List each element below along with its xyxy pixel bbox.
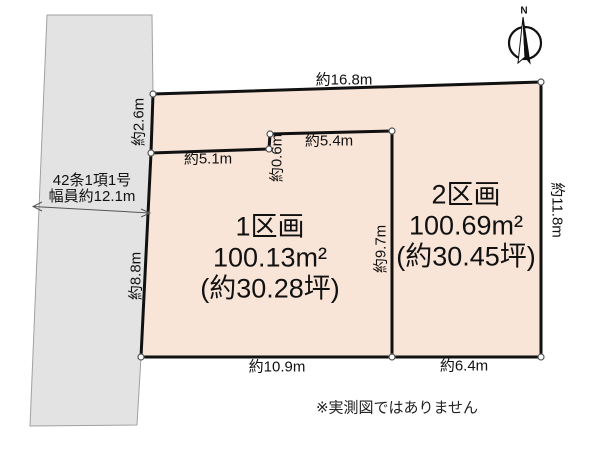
vertex-dot xyxy=(538,354,544,360)
vertex-dot xyxy=(148,150,154,156)
vertex-dot xyxy=(150,91,156,97)
parcel-2-area-tsubo: (約30.45坪) xyxy=(396,242,536,273)
dim-left-lower-edge: 約8.8m xyxy=(129,252,144,300)
parcel-1-label: 1区画 100.13m² (約30.28坪) xyxy=(200,212,340,305)
road-annotation: 42条1項1号 幅員約12.1m xyxy=(49,173,136,205)
dim-right-edge: 約11.8m xyxy=(550,182,565,238)
dim-inner-left-segment: 約5.1m xyxy=(184,152,232,167)
parcel-2-name: 2区画 xyxy=(396,180,536,211)
parcel-2-label: 2区画 100.69m² (約30.45坪) xyxy=(396,180,536,273)
plot-diagram: N 約16.8m 約2.6m 約5.1m 約0.6m 約5.4m 約9.7m 約… xyxy=(0,0,600,450)
dim-divider: 約9.7m xyxy=(374,225,389,273)
dim-left-upper-edge: 約2.6m xyxy=(132,98,147,146)
compass-north-label: N xyxy=(520,6,527,17)
parcel-1-area-sqm: 100.13m² xyxy=(200,243,340,274)
parcel-2-area-sqm: 100.69m² xyxy=(396,211,536,242)
road-area xyxy=(30,15,153,426)
vertex-dot xyxy=(389,128,395,134)
road-regulation: 42条1項1号 xyxy=(49,173,136,189)
parcel-1-area-tsubo: (約30.28坪) xyxy=(200,274,340,305)
vertex-dot xyxy=(389,354,395,360)
compass-icon xyxy=(509,17,541,63)
vertex-dot xyxy=(538,79,544,85)
vertex-dot xyxy=(138,354,144,360)
parcel-1-name: 1区画 xyxy=(200,212,340,243)
dim-inner-step: 約0.6m xyxy=(270,134,285,182)
disclaimer-note: ※実測図ではありません xyxy=(316,397,478,418)
dim-top-edge: 約16.8m xyxy=(316,73,373,88)
dim-bottom-left-edge: 約10.9m xyxy=(249,360,306,375)
dim-inner-right-segment: 約5.4m xyxy=(305,134,353,149)
dim-bottom-right-edge: 約6.4m xyxy=(440,359,488,374)
road-width-label: 幅員約12.1m xyxy=(49,189,136,205)
